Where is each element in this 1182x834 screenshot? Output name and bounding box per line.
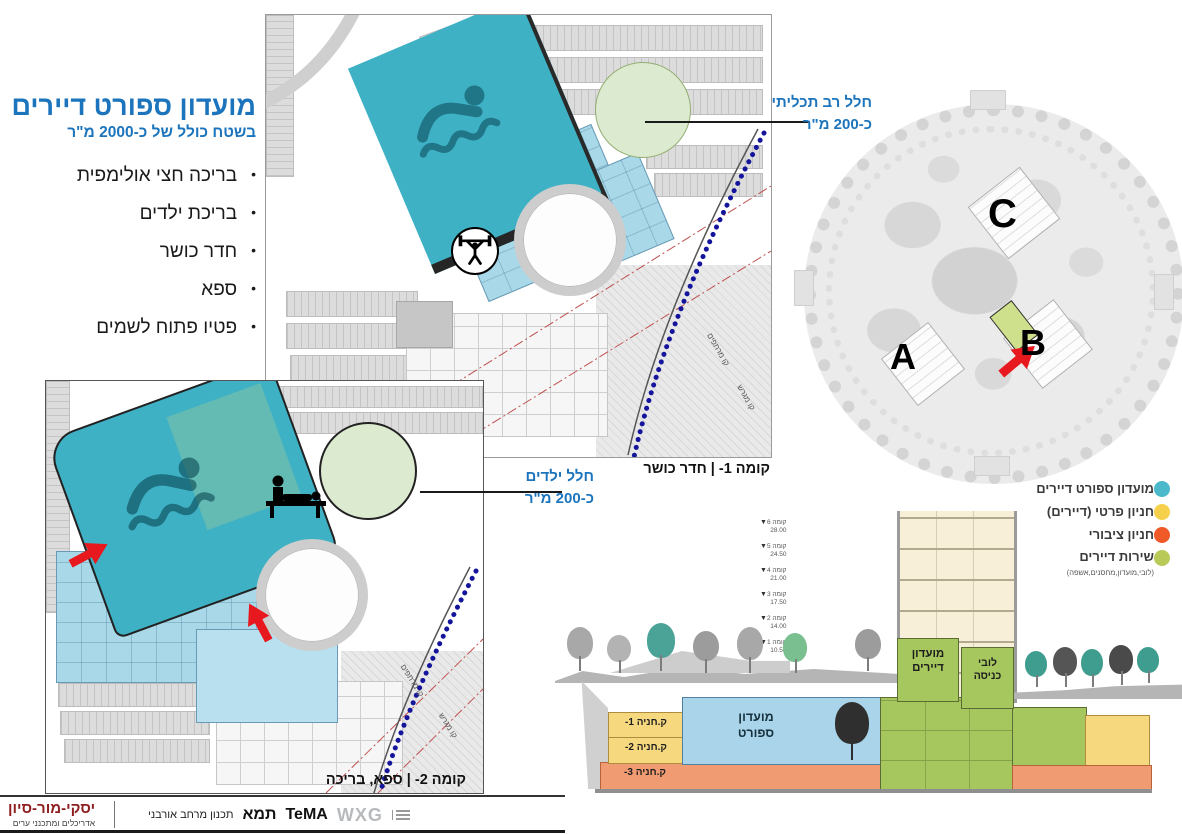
legend-dot-sport-club <box>1154 481 1170 497</box>
level-marker: ▼קומה 524.50 <box>757 543 786 559</box>
tema-name-latin: TeMA <box>285 806 327 824</box>
building-section: ▼קומה 628.00 ▼קומה 524.50 ▼קומה 421.00 ▼… <box>555 505 1182 803</box>
park-vegetation <box>832 132 1142 442</box>
feature-list: •בריכה חצי אולימפית •בריכת ילדים •חדר כו… <box>8 156 256 346</box>
entrance-lobby-block: לובי כניסה <box>961 647 1014 709</box>
core-underground-block <box>880 697 1014 791</box>
small-text-block-icon <box>392 810 410 820</box>
footer-divider <box>114 801 115 828</box>
page-subtitle: בשטח כולל של כ-2000 מ"ר <box>8 124 256 142</box>
level-triangle-icon: ▼ <box>760 519 767 528</box>
list-item: •פטיו פתוח לשמים <box>8 308 256 346</box>
tree-icon <box>567 627 593 671</box>
tema-name-hebrew: תמא <box>242 806 276 824</box>
tema-logo: תכנון מרחב אורבני תמא TeMA WXG <box>148 803 410 827</box>
tree-icon <box>855 629 881 671</box>
firm-subtitle: אדריכלים ומתכנני ערים <box>8 818 95 828</box>
floor-plan-level-minus2: קו מרתפים קו מגרש <box>45 380 484 794</box>
bullet-icon: • <box>237 318 256 334</box>
firm-name: יסקי-מור-סיון <box>8 800 95 817</box>
services-right-block <box>1012 707 1087 767</box>
parking-level-3-label: ק.חניה 3- <box>605 767 685 780</box>
park-entrance <box>974 456 1010 476</box>
patio-tree-icon <box>835 702 869 760</box>
site-label-a: A <box>890 336 916 378</box>
tema-tagline: תכנון מרחב אורבני <box>148 809 233 821</box>
bullet-icon: • <box>237 204 256 220</box>
tree-icon <box>1137 647 1159 683</box>
footer-rule <box>0 795 565 797</box>
list-item: •בריכת ילדים <box>8 194 256 232</box>
bullet-icon: • <box>237 166 256 182</box>
level-triangle-icon: ▼ <box>760 591 767 600</box>
plan2-caption: קומה 2- | ספא, בריכה <box>288 772 466 788</box>
slide: מועדון ספורט דיירים בשטח כולל של כ-2000 … <box>0 0 1182 834</box>
tree-icon <box>1081 649 1103 687</box>
firm-logo: יסקי-מור-סיון אדריכלים ומתכנני ערים <box>8 800 95 828</box>
right-parking-block <box>1085 715 1150 767</box>
plan2-lines-overlay <box>46 381 483 793</box>
site-plan: A B C <box>798 92 1182 474</box>
tree-icon <box>607 635 631 673</box>
list-item: •ספא <box>8 270 256 308</box>
tree-icon <box>1025 651 1047 687</box>
level-triangle-icon: ▼ <box>760 615 767 624</box>
site-label-b: B <box>1020 322 1046 364</box>
tree-icon <box>1109 645 1133 685</box>
list-item: •בריכה חצי אולימפית <box>8 156 256 194</box>
level-triangle-icon: ▼ <box>760 567 767 576</box>
tree-icon <box>737 627 763 673</box>
level-triangle-icon: ▼ <box>760 543 767 552</box>
sport-club-section-block: מועדון ספורט <box>682 697 882 765</box>
page-title: מועדון ספורט דיירים <box>8 92 256 122</box>
bullet-icon: • <box>237 242 256 258</box>
plan1-caption: קומה 1- | חדר כושר <box>598 461 770 477</box>
tree-icon <box>647 623 675 671</box>
right-public-parking-block <box>1012 765 1152 791</box>
list-item: •חדר כושר <box>8 232 256 270</box>
parking-level-2-block: ק.חניה 2- <box>608 737 684 764</box>
park-entrance <box>794 270 814 306</box>
bullet-icon: • <box>237 280 256 296</box>
title-block: מועדון ספורט דיירים בשטח כולל של כ-2000 … <box>8 92 256 346</box>
level-marker: ▼קומה 317.50 <box>757 591 786 607</box>
foundation-line <box>595 789 1152 793</box>
tree-icon <box>1053 647 1077 687</box>
kids-hall-callout: חלל ילדים כ-200 מ"ר <box>488 466 594 510</box>
parking-level-1-block: ק.חניה 1- <box>608 712 684 739</box>
legend-item: מועדון ספורט דיירים <box>1018 481 1178 497</box>
park-entrance <box>970 90 1006 110</box>
wxg-logo: WXG <box>337 805 383 826</box>
level-marker: ▼קומה 628.00 <box>757 519 786 535</box>
residents-club-block: מועדון דיירים <box>897 638 959 702</box>
park-entrance <box>1154 274 1174 310</box>
bottom-bar <box>0 830 565 833</box>
tree-icon <box>693 631 719 673</box>
site-label-c: C <box>988 192 1017 237</box>
level-marker: ▼קומה 421.00 <box>757 567 786 583</box>
tree-icon <box>783 633 807 673</box>
